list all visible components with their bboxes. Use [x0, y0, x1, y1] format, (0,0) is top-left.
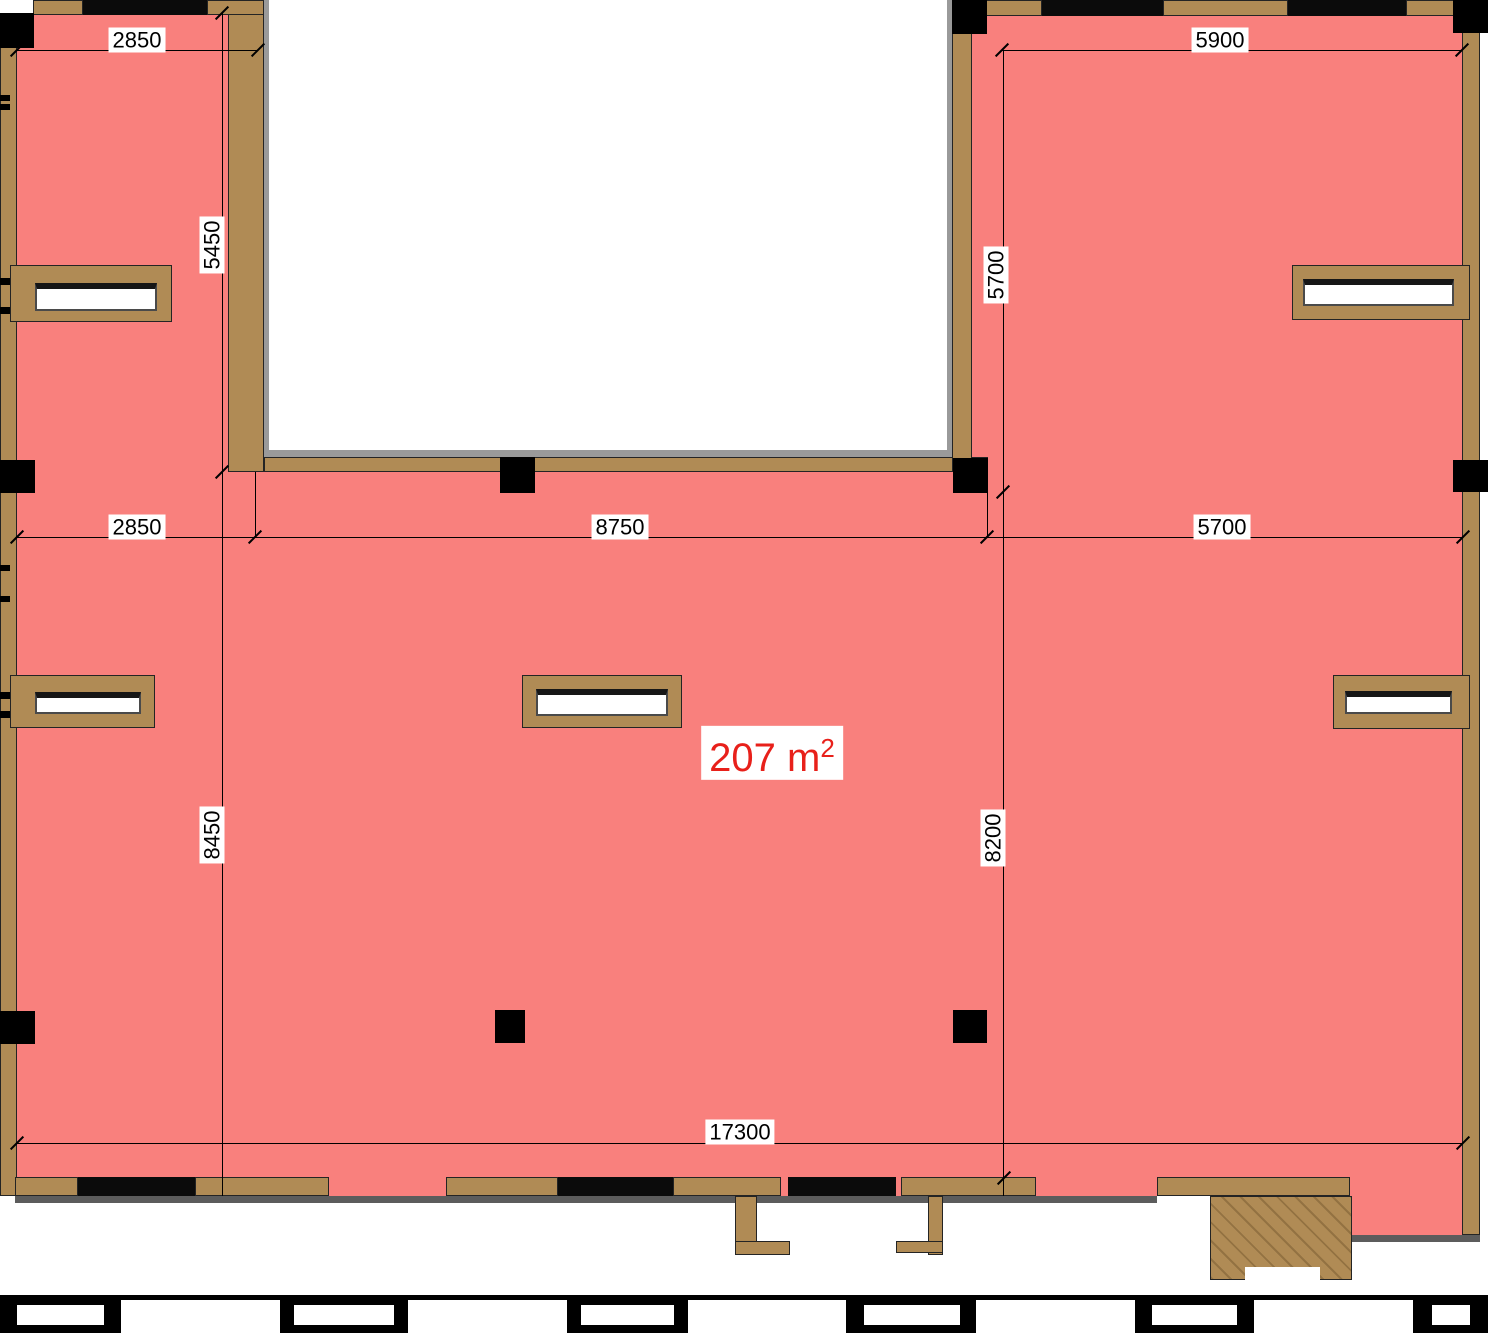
entrance-door [788, 1177, 896, 1196]
sidewalk-gap [688, 1300, 846, 1333]
sidewalk-gap [17, 1305, 104, 1325]
bottom-wall-pier [901, 1177, 1036, 1196]
sidewalk-gap [1152, 1305, 1237, 1325]
window [1303, 279, 1454, 306]
top-wall-window [1042, 0, 1163, 16]
column [495, 1010, 525, 1043]
bottom-wall-window [78, 1177, 195, 1196]
top-wall-window [83, 0, 207, 15]
dimension-label-left-wing-height: 5450 [200, 217, 225, 274]
terrace-edge-shadow [1345, 1235, 1480, 1242]
sidewalk-gap [976, 1300, 1135, 1333]
window [35, 283, 157, 311]
window [1345, 691, 1452, 714]
wall-joint-mark [0, 104, 10, 110]
column [1453, 0, 1488, 33]
dimension-label-right-wing-height: 5700 [984, 247, 1009, 304]
sidewalk-gap [1254, 1300, 1413, 1333]
dimension-label-mid-center-width: 8750 [592, 515, 649, 540]
bottom-wall-pier [195, 1177, 329, 1196]
dimension-label-top-right-width: 5900 [1192, 28, 1249, 53]
bottom-wall-window [558, 1177, 673, 1196]
grid-line-vertical [222, 13, 223, 1196]
floor-plan: 2850 5900 5450 5700 2850 8750 5700 8450 … [0, 0, 1488, 1333]
dimension-label-mid-right-width: 5700 [1194, 515, 1251, 540]
column [0, 460, 35, 493]
wall-joint-mark [0, 596, 10, 602]
terrace-floor [1350, 1196, 1462, 1235]
extension-line [987, 493, 988, 537]
dimension-label-bottom-total-width: 17300 [705, 1120, 774, 1145]
sidewalk-gap [294, 1305, 394, 1325]
wall-joint-mark [0, 95, 10, 101]
sidewalk-gap [121, 1300, 280, 1333]
dimension-label-mid-left-width: 2850 [109, 515, 166, 540]
grid-line-vertical [1003, 50, 1004, 1196]
column [0, 1011, 35, 1044]
notch-bottom-wall [264, 457, 988, 472]
column [952, 0, 987, 34]
entrance-porch-wall [735, 1241, 790, 1255]
dimension-label-top-left-width: 2850 [109, 28, 166, 53]
column [0, 13, 34, 48]
top-wall-pier [207, 0, 264, 15]
wall-joint-mark [0, 565, 10, 571]
dimension-label-left-main-height: 8450 [200, 807, 225, 864]
sidewalk-gap [581, 1305, 674, 1325]
window [536, 689, 668, 716]
ramp-notch [1245, 1267, 1320, 1280]
column [953, 1010, 987, 1043]
notch-shadow-left [264, 0, 269, 457]
top-wall-pier [33, 0, 83, 15]
right-wing-left-wall [952, 0, 972, 472]
wall-joint-mark [0, 711, 10, 718]
sidewalk-gap [864, 1305, 960, 1325]
wall-joint-mark [0, 692, 10, 699]
right-wall [1462, 13, 1480, 1235]
wall-joint-mark [0, 307, 10, 314]
dimension-label-right-main-height: 8200 [981, 810, 1006, 867]
area-label-sup: 2 [820, 733, 834, 763]
extension-line [255, 472, 256, 537]
floor-edge-shadow [15, 1196, 1157, 1203]
top-wall-pier [1163, 0, 1288, 16]
area-label-text: 207 m [709, 736, 820, 780]
entrance-porch-wall [896, 1241, 943, 1253]
sidewalk-gap [1432, 1305, 1470, 1325]
column [953, 458, 988, 493]
bottom-wall-pier [673, 1177, 781, 1196]
notch-shadow-bottom [264, 450, 952, 457]
left-wing-right-wall [228, 0, 264, 472]
column [500, 457, 535, 493]
area-label: 207 m2 [701, 726, 843, 780]
window [35, 692, 141, 714]
courtyard-notch [264, 0, 952, 457]
top-wall-window [1288, 0, 1406, 16]
bottom-wall-pier [446, 1177, 558, 1196]
bottom-wall-pier [1157, 1177, 1350, 1196]
sidewalk-gap [408, 1300, 567, 1333]
wall-joint-mark [0, 278, 10, 285]
column [1453, 460, 1488, 492]
bottom-wall-pier [15, 1177, 78, 1196]
